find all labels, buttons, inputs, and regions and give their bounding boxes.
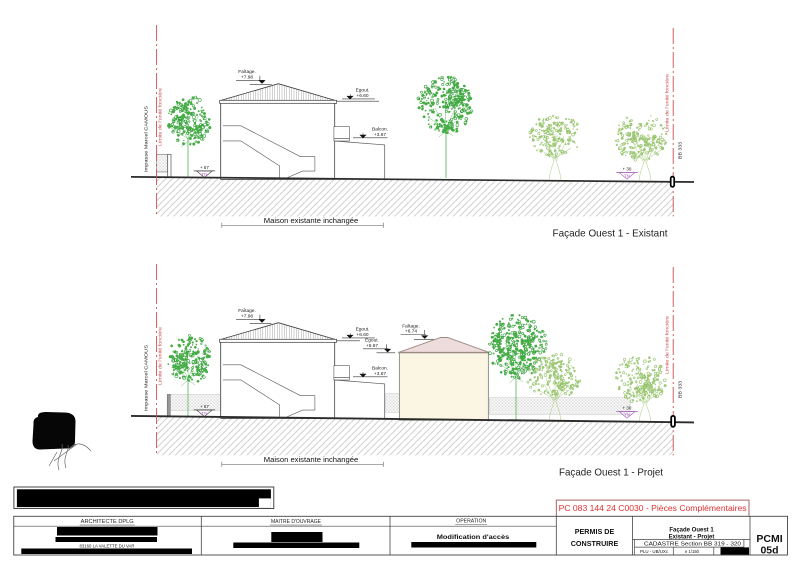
svg-text:Faîtage.: Faîtage. bbox=[238, 69, 256, 75]
svg-text:+6.74: +6.74 bbox=[405, 329, 417, 335]
svg-text:+7.98: +7.98 bbox=[241, 313, 253, 319]
svg-text:OPERATION: OPERATION bbox=[456, 519, 486, 525]
svg-text:Impasse Marcel CAMOUS: Impasse Marcel CAMOUS bbox=[144, 345, 149, 411]
svg-text:+5.67: +5.67 bbox=[366, 343, 378, 349]
svg-text:Egout.: Egout. bbox=[356, 327, 370, 333]
svg-text:Faîtage.: Faîtage. bbox=[238, 308, 256, 314]
svg-text:PLU - UB/UXc: PLU - UB/UXc bbox=[640, 549, 669, 554]
svg-text:Modification d'accès: Modification d'accès bbox=[437, 534, 510, 541]
svg-text:Façade Ouest 1: Façade Ouest 1 bbox=[669, 527, 714, 533]
svg-text:+ 30: + 30 bbox=[623, 167, 632, 172]
svg-text:Faîtage.: Faîtage. bbox=[402, 323, 420, 329]
svg-text:Limite de l'unité foncière: Limite de l'unité foncière bbox=[665, 316, 670, 374]
svg-text:CADASTRE Section BB 319 - 320: CADASTRE Section BB 319 - 320 bbox=[644, 542, 741, 548]
svg-text:BB 333: BB 333 bbox=[678, 142, 684, 159]
svg-text:+ 57: + 57 bbox=[200, 165, 209, 170]
svg-text:Balcon.: Balcon. bbox=[372, 366, 388, 372]
svg-text:PC 083 144 24 C0030 - Pièces C: PC 083 144 24 C0030 - Pièces Complémenta… bbox=[559, 504, 747, 513]
svg-text:+ 30: + 30 bbox=[623, 406, 632, 411]
svg-text:Impasse Marcel CAMOUS: Impasse Marcel CAMOUS bbox=[144, 106, 149, 172]
svg-text:+3.67: +3.67 bbox=[374, 371, 386, 377]
svg-text:Egout.: Egout. bbox=[365, 338, 379, 344]
svg-text:Existant - Projet: Existant - Projet bbox=[669, 534, 715, 540]
svg-text:TN: TN bbox=[624, 413, 630, 418]
svg-text:PERMIS DE: PERMIS DE bbox=[575, 527, 615, 536]
svg-text:05d: 05d bbox=[760, 545, 778, 557]
svg-text:Egout.: Egout. bbox=[356, 88, 370, 94]
svg-text:ARCHITECTE DPLG: ARCHITECTE DPLG bbox=[81, 519, 134, 525]
svg-text:TN: TN bbox=[201, 172, 207, 177]
svg-text:83160 LA VALETTE DU VAR: 83160 LA VALETTE DU VAR bbox=[80, 543, 135, 548]
svg-text:Façade Ouest 1 - Projet: Façade Ouest 1 - Projet bbox=[559, 467, 663, 479]
svg-text:Maison existante inchangée: Maison existante inchangée bbox=[264, 216, 359, 225]
svg-text:CONSTRUIRE: CONSTRUIRE bbox=[571, 539, 619, 548]
svg-text:Limite de l'unité foncière: Limite de l'unité foncière bbox=[157, 327, 162, 385]
svg-text:+6.60: +6.60 bbox=[356, 332, 368, 338]
svg-text:Balcon.: Balcon. bbox=[372, 127, 388, 133]
svg-text:+6.60: +6.60 bbox=[356, 93, 368, 99]
svg-text:Limite de l'unité foncière: Limite de l'unité foncière bbox=[157, 88, 162, 146]
svg-text:MAITRE D'OUVRAGE: MAITRE D'OUVRAGE bbox=[271, 519, 322, 525]
svg-text:Maison existante inchangée: Maison existante inchangée bbox=[264, 455, 359, 464]
svg-text:+3.67: +3.67 bbox=[374, 132, 386, 138]
svg-text:+7.98: +7.98 bbox=[241, 74, 253, 80]
svg-text:Façade Ouest 1 - Existant: Façade Ouest 1 - Existant bbox=[553, 228, 668, 240]
svg-text:TN: TN bbox=[201, 411, 207, 416]
svg-text:BB 333: BB 333 bbox=[678, 381, 684, 398]
svg-text:Limite de l'unité foncière: Limite de l'unité foncière bbox=[665, 74, 670, 132]
svg-text:e 1/150: e 1/150 bbox=[685, 549, 700, 554]
svg-text:+ 57: + 57 bbox=[200, 404, 209, 409]
svg-text:PCMI: PCMI bbox=[756, 533, 782, 545]
svg-text:TN: TN bbox=[624, 174, 630, 179]
